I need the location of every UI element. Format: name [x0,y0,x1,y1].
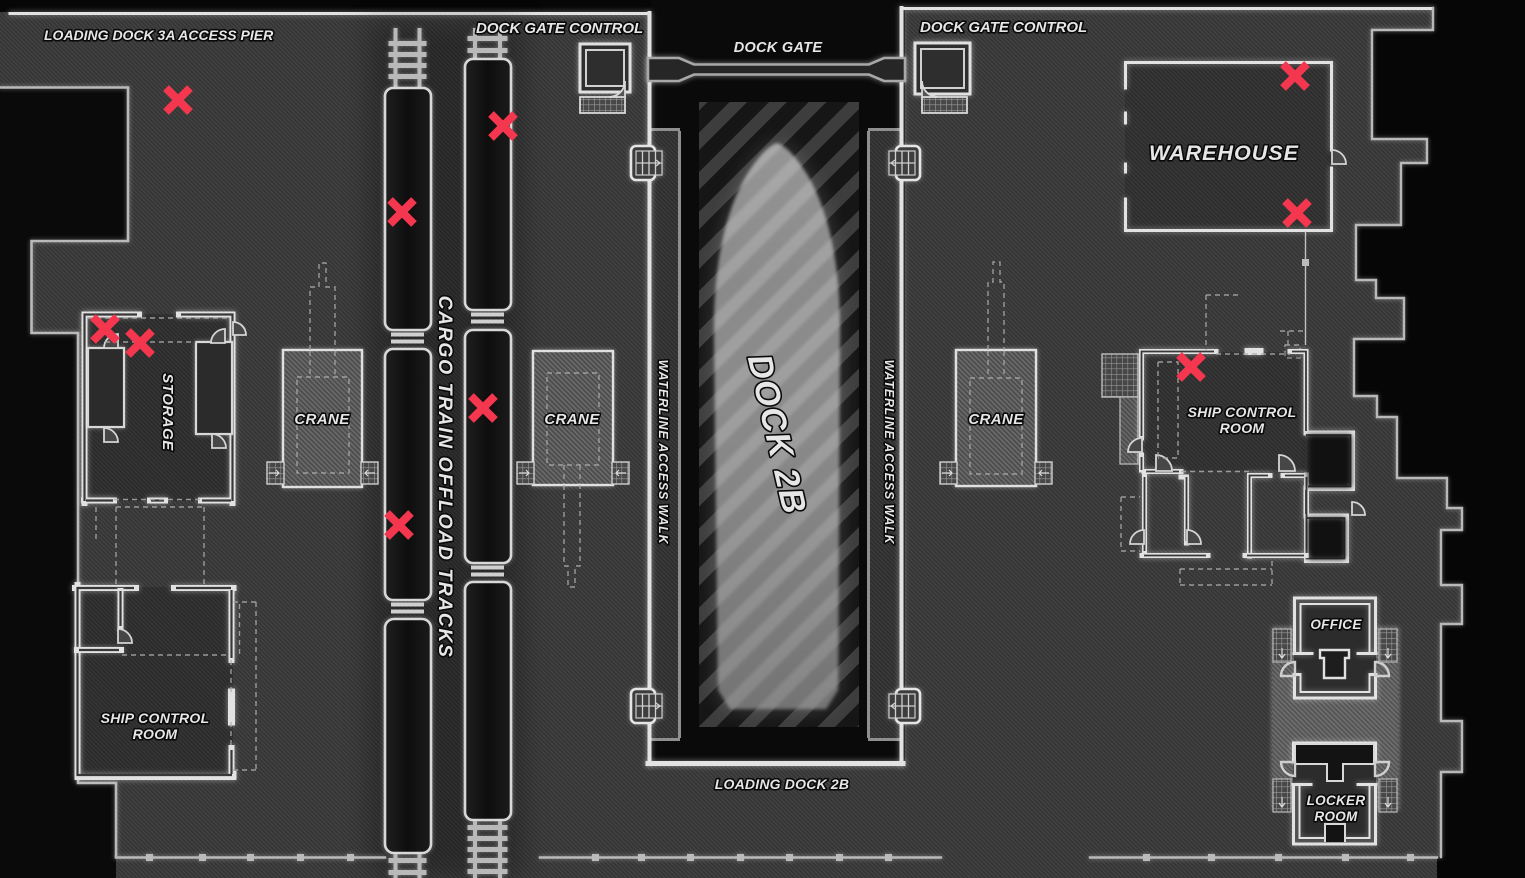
svg-text:LOADING DOCK 3A ACCESS PIER: LOADING DOCK 3A ACCESS PIER [44,27,274,43]
svg-text:WATERLINE ACCESS WALK: WATERLINE ACCESS WALK [656,360,670,545]
svg-text:ROOM: ROOM [133,726,178,742]
svg-text:CARGO TRAIN OFFLOAD TRACKS: CARGO TRAIN OFFLOAD TRACKS [434,296,456,659]
svg-text:DOCK GATE: DOCK GATE [734,40,824,56]
svg-text:CRANE: CRANE [968,411,1024,428]
svg-text:CRANE: CRANE [544,411,600,428]
svg-text:SHIP CONTROL: SHIP CONTROL [101,710,210,726]
svg-text:DOCK GATE CONTROL: DOCK GATE CONTROL [476,20,643,37]
svg-text:LOADING DOCK 2B: LOADING DOCK 2B [715,776,849,792]
svg-text:WAREHOUSE: WAREHOUSE [1149,141,1299,165]
svg-text:ROOM: ROOM [1314,809,1358,824]
svg-text:LOCKER: LOCKER [1307,793,1366,808]
svg-text:DOCK GATE CONTROL: DOCK GATE CONTROL [920,19,1087,36]
svg-text:ROOM: ROOM [1220,420,1265,436]
svg-text:STORAGE: STORAGE [159,373,176,451]
svg-text:SHIP CONTROL: SHIP CONTROL [1188,404,1297,420]
svg-text:CRANE: CRANE [294,411,350,428]
svg-text:OFFICE: OFFICE [1310,617,1362,632]
svg-text:WATERLINE ACCESS WALK: WATERLINE ACCESS WALK [882,360,896,545]
